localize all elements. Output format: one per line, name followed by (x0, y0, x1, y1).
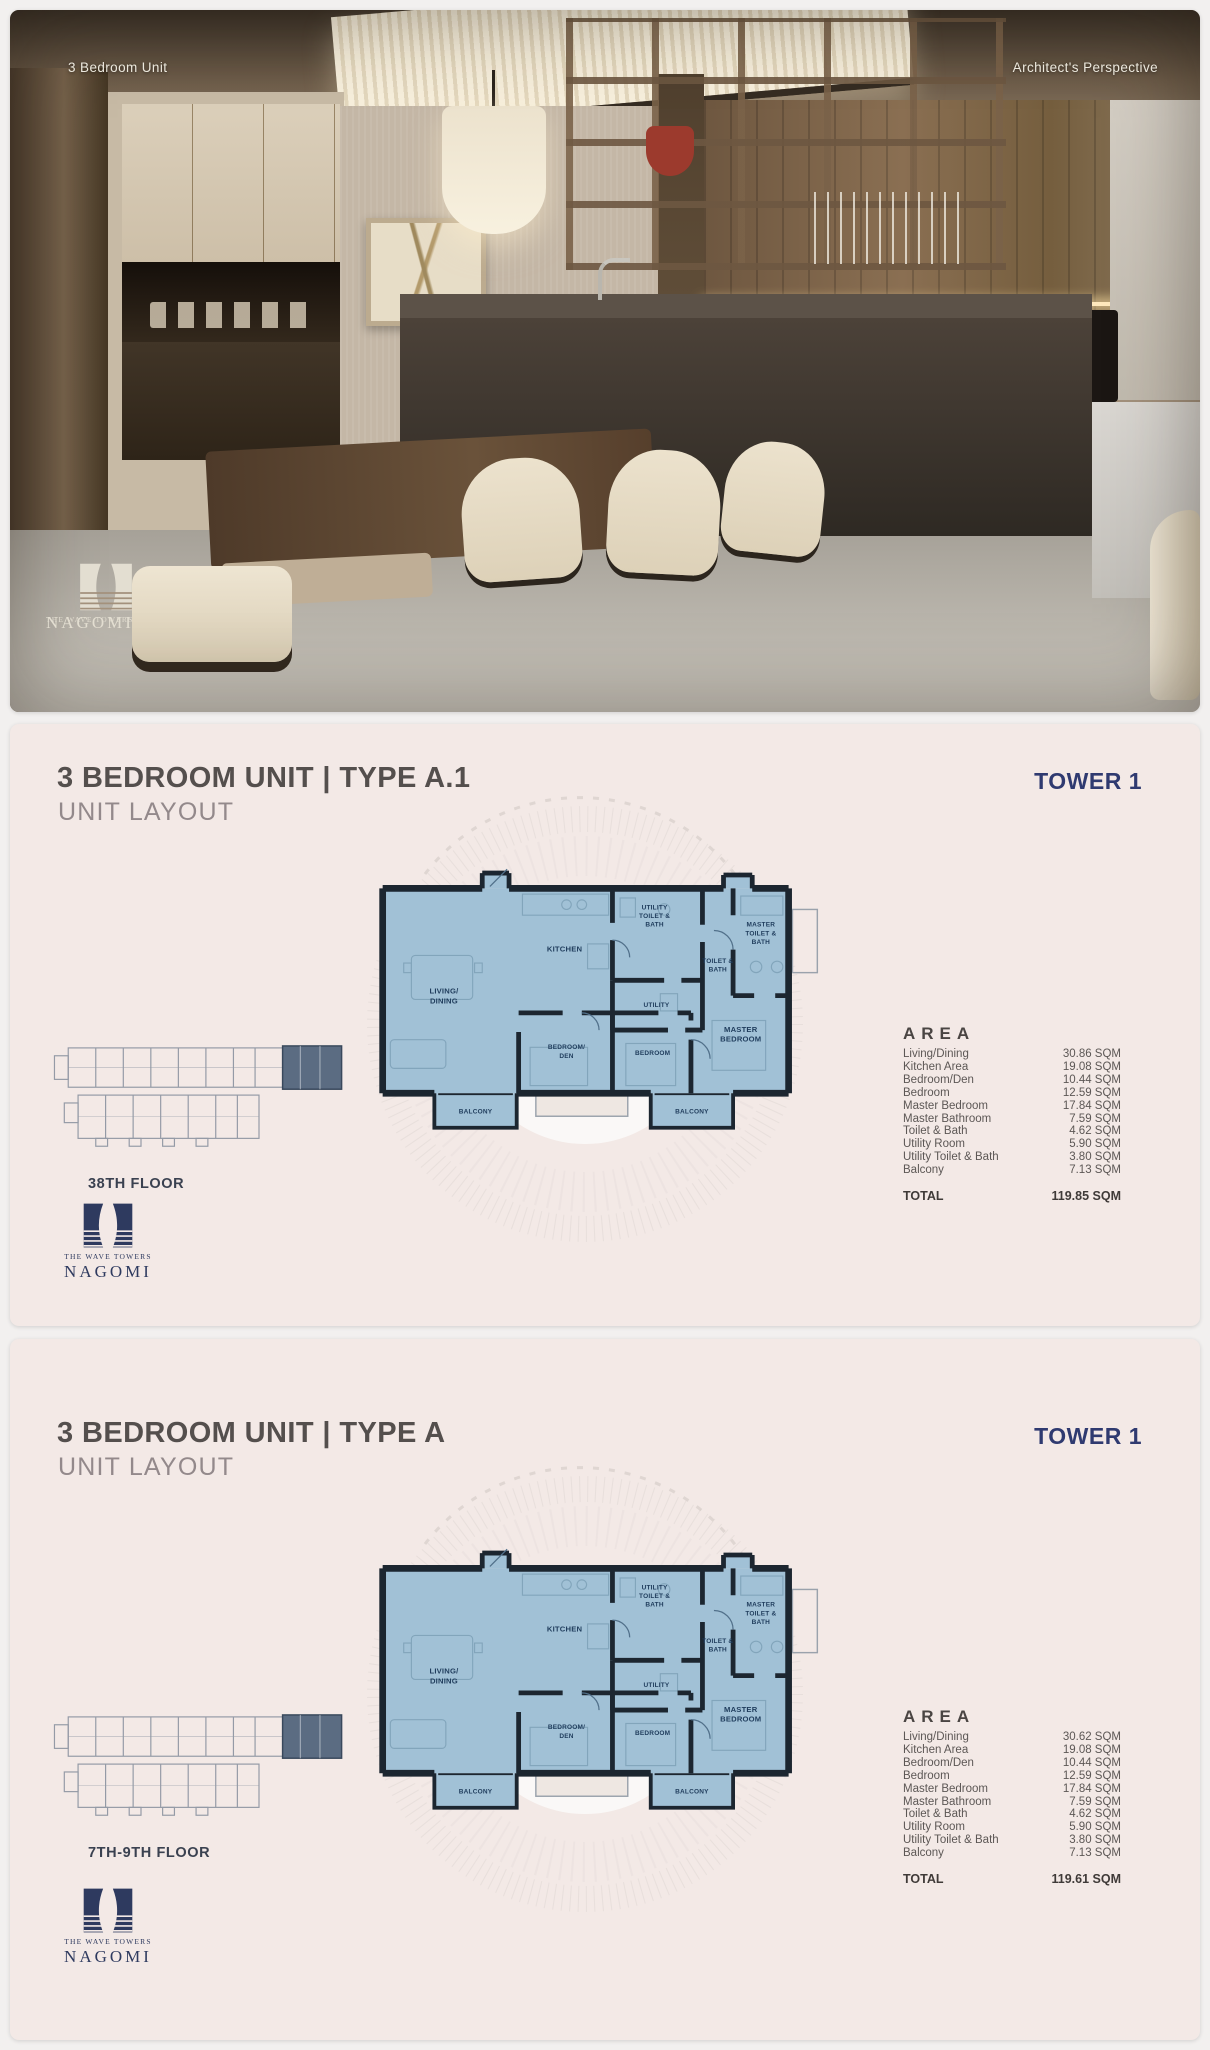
area-row: Bedroom/Den10.44 SQM (903, 1074, 1121, 1087)
area-heading: AREA (903, 1707, 1121, 1727)
nagomi-logo: THE WAVE TOWERS NAGOMI (48, 1202, 168, 1282)
area-row-label: Utility Toilet & Bath (903, 1151, 999, 1164)
nagomi-towers-icon (78, 562, 134, 612)
room-label-bedroom: BEDROOM (635, 1730, 670, 1737)
area-row-label: Kitchen Area (903, 1744, 968, 1757)
keyplan (52, 1042, 348, 1160)
photo-caption-perspective: Architect's Perspective (1013, 60, 1158, 75)
area-total-value: 119.85 SQM (1052, 1189, 1122, 1203)
svg-text:TOILET &: TOILET & (639, 913, 670, 920)
brand-name: NAGOMI (48, 1947, 168, 1967)
page-title: 3 BEDROOM UNIT | TYPE A.1 (57, 762, 470, 795)
area-row: Bedroom12.59 SQM (903, 1770, 1121, 1783)
area-row-value: 7.59 SQM (1069, 1796, 1121, 1809)
area-row-value: 4.62 SQM (1069, 1808, 1121, 1821)
room-label-kitchen: KITCHEN (547, 945, 582, 954)
area-total-label: TOTAL (903, 1189, 944, 1203)
area-row-label: Utility Room (903, 1821, 965, 1834)
room-label-living: LIVING/ (429, 1667, 459, 1676)
svg-text:DINING: DINING (430, 996, 458, 1005)
floor-label: 38TH FLOOR (88, 1176, 184, 1192)
area-row: Utility Toilet & Bath3.80 SQM (903, 1151, 1121, 1164)
area-row: Balcony7.13 SQM (903, 1164, 1121, 1177)
nagomi-logo: THE WAVE TOWERS NAGOMI (46, 562, 166, 612)
svg-text:BEDROOM: BEDROOM (720, 1035, 761, 1044)
area-row-label: Master Bathroom (903, 1796, 991, 1809)
area-row-label: Utility Toilet & Bath (903, 1834, 999, 1847)
area-row-value: 10.44 SQM (1063, 1074, 1121, 1087)
area-total-value: 119.61 SQM (1052, 1872, 1122, 1886)
area-row: Utility Room5.90 SQM (903, 1138, 1121, 1151)
svg-text:TOILET &: TOILET & (745, 1610, 776, 1617)
svg-text:BATH: BATH (709, 967, 727, 974)
area-row-value: 5.90 SQM (1069, 1138, 1121, 1151)
keyplan (52, 1711, 348, 1829)
unit-layout-panel-type-a: 3 BEDROOM UNIT | TYPE A UNIT LAYOUT TOWE… (10, 1339, 1200, 2040)
room-label-master-tb: MASTER (747, 1602, 776, 1609)
area-row-value: 7.13 SQM (1069, 1164, 1121, 1177)
room-label-balcony: BALCONY (675, 1108, 709, 1115)
area-row-label: Master Bedroom (903, 1100, 988, 1113)
area-row: Bedroom12.59 SQM (903, 1087, 1121, 1100)
tower-label: TOWER 1 (1034, 768, 1142, 795)
area-row-value: 7.13 SQM (1069, 1847, 1121, 1860)
room-label-master-bedroom: MASTER (724, 1025, 758, 1034)
unit-layout-panel-type-a1: 3 BEDROOM UNIT | TYPE A.1 UNIT LAYOUT TO… (10, 724, 1200, 1326)
room-label-toilet-bath: TOILET & (702, 1638, 733, 1645)
area-row: Toilet & Bath4.62 SQM (903, 1808, 1121, 1821)
photo-caption-unit: 3 Bedroom Unit (68, 60, 167, 75)
area-row: Living/Dining30.86 SQM (903, 1048, 1121, 1061)
area-row: Master Bedroom17.84 SQM (903, 1783, 1121, 1796)
svg-text:DINING: DINING (430, 1676, 458, 1685)
area-heading: AREA (903, 1024, 1121, 1044)
area-row-value: 10.44 SQM (1063, 1757, 1121, 1770)
room-label-utility: UTILITY (644, 1002, 670, 1009)
area-row-value: 19.08 SQM (1063, 1744, 1121, 1757)
svg-text:BATH: BATH (752, 1619, 770, 1626)
area-row-value: 17.84 SQM (1063, 1100, 1121, 1113)
unit-floorplan: LIVING/ DINING KITCHEN UTILITY TOILET & … (375, 1532, 825, 1838)
nagomi-towers-icon (82, 1887, 134, 1934)
svg-text:BATH: BATH (709, 1647, 727, 1654)
page-subtitle: UNIT LAYOUT (58, 798, 234, 827)
area-table: AREA Living/Dining30.86 SQM Kitchen Area… (903, 1024, 1121, 1203)
area-row: Living/Dining30.62 SQM (903, 1731, 1121, 1744)
svg-text:TOILET &: TOILET & (745, 930, 776, 937)
area-row-label: Balcony (903, 1847, 944, 1860)
area-row-value: 12.59 SQM (1063, 1087, 1121, 1100)
area-row-value: 3.80 SQM (1069, 1834, 1121, 1847)
keyplan-highlighted-unit (283, 1046, 342, 1089)
room-label-master-tb: MASTER (747, 922, 776, 929)
area-row-label: Toilet & Bath (903, 1808, 968, 1821)
area-row-value: 30.86 SQM (1063, 1048, 1121, 1061)
unit-floorplan: LIVING/ DINING KITCHEN UTILITY TOILET & … (375, 852, 825, 1158)
area-row-value: 7.59 SQM (1069, 1113, 1121, 1126)
area-row-label: Master Bedroom (903, 1783, 988, 1796)
svg-text:BATH: BATH (752, 939, 770, 946)
room-label-living: LIVING/ (429, 987, 459, 996)
area-row: Master Bedroom17.84 SQM (903, 1100, 1121, 1113)
area-row: Master Bathroom7.59 SQM (903, 1796, 1121, 1809)
area-row-label: Bedroom/Den (903, 1074, 974, 1087)
area-row-value: 5.90 SQM (1069, 1821, 1121, 1834)
svg-text:BATH: BATH (645, 922, 663, 929)
brochure-page: 3 Bedroom Unit Architect's Perspective T… (0, 0, 1210, 2050)
area-row-label: Utility Room (903, 1138, 965, 1151)
room-label-balcony: BALCONY (675, 1788, 709, 1795)
brand-name: NAGOMI (46, 613, 134, 633)
area-total-row: TOTAL119.85 SQM (903, 1189, 1121, 1203)
photo-vignette (10, 10, 1200, 712)
room-label-utility-tb: UTILITY (642, 904, 668, 911)
svg-text:TOILET &: TOILET & (639, 1593, 670, 1600)
area-row: Kitchen Area19.08 SQM (903, 1744, 1121, 1757)
page-subtitle: UNIT LAYOUT (58, 1453, 234, 1482)
room-label-balcony: BALCONY (459, 1108, 493, 1115)
area-row-value: 30.62 SQM (1063, 1731, 1121, 1744)
svg-text:DEN: DEN (559, 1733, 573, 1740)
area-row-label: Bedroom (903, 1770, 950, 1783)
nagomi-towers-icon (82, 1202, 134, 1249)
room-label-bedroom-den: BEDROOM/ (548, 1724, 585, 1731)
area-row-value: 12.59 SQM (1063, 1770, 1121, 1783)
brand-tagline: THE WAVE TOWERS (48, 1252, 168, 1261)
area-row-value: 19.08 SQM (1063, 1061, 1121, 1074)
area-total-label: TOTAL (903, 1872, 944, 1886)
room-label-master-bedroom: MASTER (724, 1705, 758, 1714)
svg-text:BATH: BATH (645, 1602, 663, 1609)
floor-label: 7TH-9TH FLOOR (88, 1845, 210, 1861)
nagomi-logo: THE WAVE TOWERS NAGOMI (48, 1887, 168, 1967)
room-label-bedroom-den: BEDROOM/ (548, 1044, 585, 1051)
area-row: Kitchen Area19.08 SQM (903, 1061, 1121, 1074)
area-row-label: Toilet & Bath (903, 1125, 968, 1138)
area-row-label: Balcony (903, 1164, 944, 1177)
brand-name: NAGOMI (48, 1262, 168, 1282)
area-total-row: TOTAL119.61 SQM (903, 1872, 1121, 1886)
area-row: Balcony7.13 SQM (903, 1847, 1121, 1860)
room-label-utility-tb: UTILITY (642, 1584, 668, 1591)
area-row: Bedroom/Den10.44 SQM (903, 1757, 1121, 1770)
area-row-label: Master Bathroom (903, 1113, 991, 1126)
svg-text:DEN: DEN (559, 1053, 573, 1060)
area-row: Utility Room5.90 SQM (903, 1821, 1121, 1834)
photo-panel: 3 Bedroom Unit Architect's Perspective T… (10, 10, 1200, 712)
svg-text:BEDROOM: BEDROOM (720, 1715, 761, 1724)
room-label-toilet-bath: TOILET & (702, 958, 733, 965)
area-row-value: 4.62 SQM (1069, 1125, 1121, 1138)
room-label-kitchen: KITCHEN (547, 1625, 582, 1634)
room-label-utility: UTILITY (644, 1682, 670, 1689)
page-title: 3 BEDROOM UNIT | TYPE A (57, 1417, 445, 1450)
tower-label: TOWER 1 (1034, 1423, 1142, 1450)
area-row-label: Living/Dining (903, 1048, 969, 1061)
area-row: Utility Toilet & Bath3.80 SQM (903, 1834, 1121, 1847)
area-row-value: 17.84 SQM (1063, 1783, 1121, 1796)
area-row-label: Kitchen Area (903, 1061, 968, 1074)
room-label-bedroom: BEDROOM (635, 1050, 670, 1057)
room-label-balcony: BALCONY (459, 1788, 493, 1795)
area-table: AREA Living/Dining30.62 SQM Kitchen Area… (903, 1707, 1121, 1886)
area-row-label: Living/Dining (903, 1731, 969, 1744)
area-row-label: Bedroom/Den (903, 1757, 974, 1770)
area-row-value: 3.80 SQM (1069, 1151, 1121, 1164)
brand-tagline: THE WAVE TOWERS (48, 1937, 168, 1946)
area-row: Master Bathroom7.59 SQM (903, 1113, 1121, 1126)
keyplan-highlighted-unit (283, 1715, 342, 1758)
area-row: Toilet & Bath4.62 SQM (903, 1125, 1121, 1138)
area-row-label: Bedroom (903, 1087, 950, 1100)
